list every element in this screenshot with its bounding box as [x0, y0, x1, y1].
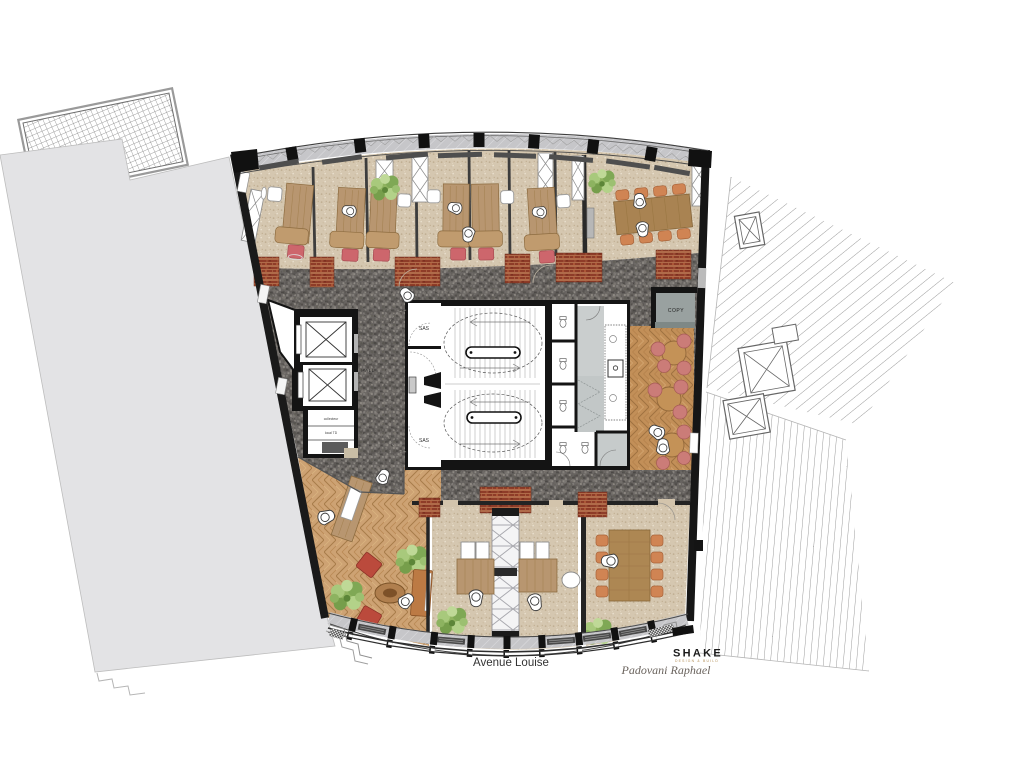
- svg-text:Avenue Louise: Avenue Louise: [473, 657, 549, 669]
- svg-text:HALL: HALL: [361, 368, 375, 374]
- svg-text:Padovani Raphael: Padovani Raphael: [621, 663, 712, 677]
- svg-text:COPY: COPY: [668, 308, 684, 314]
- svg-text:SHAKE: SHAKE: [673, 648, 723, 660]
- svg-text:collecteur: collecteur: [324, 417, 339, 421]
- svg-text:SAS: SAS: [419, 326, 430, 332]
- svg-text:SAS: SAS: [419, 438, 430, 444]
- svg-text:local TD: local TD: [325, 431, 338, 435]
